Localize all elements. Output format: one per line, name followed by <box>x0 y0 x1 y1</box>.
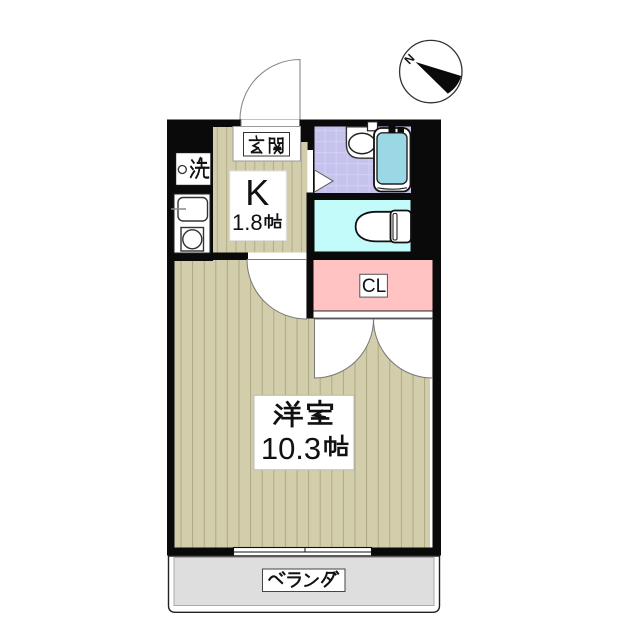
svg-text:CL: CL <box>362 276 386 297</box>
svg-text:1.8: 1.8 <box>232 210 263 235</box>
svg-text:K: K <box>245 172 269 213</box>
svg-text:10.3: 10.3 <box>261 431 321 466</box>
